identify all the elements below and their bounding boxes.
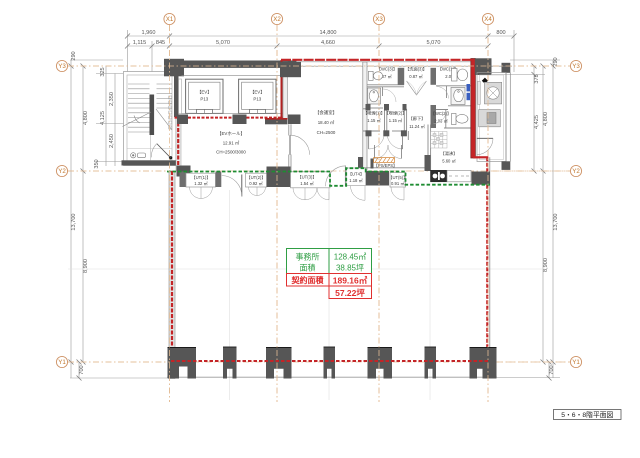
svg-text:12.91 ㎡: 12.91 ㎡ — [223, 140, 240, 146]
svg-text:【湯沸】: 【湯沸】 — [441, 150, 458, 157]
svg-text:325: 325 — [100, 67, 106, 76]
svg-text:1.18 ㎡: 1.18 ㎡ — [349, 177, 363, 183]
svg-text:800: 800 — [496, 30, 505, 36]
svg-text:700: 700 — [79, 365, 85, 374]
svg-text:700: 700 — [549, 365, 555, 374]
svg-text:【EV】: 【EV】 — [197, 90, 212, 95]
svg-text:Y3: Y3 — [572, 63, 580, 70]
svg-text:面積: 面積 — [300, 263, 316, 273]
svg-text:57.22坪: 57.22坪 — [335, 288, 365, 298]
svg-text:【EVホール】: 【EVホール】 — [217, 131, 245, 136]
svg-text:5・6・8階平面図: 5・6・8階平面図 — [561, 410, 613, 419]
svg-text:4,800: 4,800 — [543, 112, 549, 126]
svg-text:38.85坪: 38.85坪 — [336, 264, 364, 273]
svg-text:845: 845 — [156, 40, 165, 46]
svg-text:189.16㎡: 189.16㎡ — [333, 276, 368, 286]
svg-text:【UT(5)】: 【UT(5)】 — [388, 175, 407, 180]
svg-text:【喫煙(1)】: 【喫煙(1)】 — [363, 110, 385, 117]
svg-text:290: 290 — [71, 51, 77, 60]
svg-text:【UT(1)】: 【UT(1)】 — [191, 175, 210, 180]
svg-text:【PS/EPS】: 【PS/EPS】 — [374, 163, 398, 168]
svg-text:1,115: 1,115 — [133, 40, 147, 46]
svg-text:Y2: Y2 — [572, 168, 580, 175]
svg-text:P13: P13 — [200, 97, 208, 102]
svg-text:13,700: 13,700 — [71, 213, 77, 230]
svg-text:X4: X4 — [484, 16, 492, 23]
svg-text:CH=2500/3000: CH=2500/3000 — [216, 150, 246, 155]
svg-text:0.92 ㎡: 0.92 ㎡ — [249, 180, 263, 186]
svg-text:X3: X3 — [375, 16, 383, 23]
svg-text:【UT(2)】: 【UT(2)】 — [246, 175, 265, 180]
svg-text:0.91 ㎡: 0.91 ㎡ — [391, 180, 405, 186]
svg-text:【洗面(3)】: 【洗面(3)】 — [405, 66, 427, 73]
svg-text:4,425: 4,425 — [534, 115, 540, 129]
svg-text:13,700: 13,700 — [553, 213, 559, 230]
svg-text:1.15 ㎡: 1.15 ㎡ — [367, 117, 381, 123]
svg-text:8,900: 8,900 — [543, 258, 549, 272]
svg-text:128.45㎡: 128.45㎡ — [334, 253, 366, 262]
svg-text:1.32 ㎡: 1.32 ㎡ — [194, 180, 208, 186]
svg-text:18.40 ㎡: 18.40 ㎡ — [318, 119, 335, 125]
svg-text:1.54 ㎡: 1.54 ㎡ — [300, 180, 314, 186]
svg-text:Y3: Y3 — [58, 63, 66, 70]
svg-text:Y1: Y1 — [58, 359, 66, 366]
svg-text:【WC(3)】: 【WC(3)】 — [377, 67, 397, 72]
svg-text:2,450: 2,450 — [109, 134, 115, 148]
svg-text:5.60 ㎡: 5.60 ㎡ — [442, 158, 456, 164]
svg-text:【会議室】: 【会議室】 — [315, 109, 337, 116]
svg-text:X2: X2 — [273, 16, 281, 23]
svg-text:11.24 ㎡: 11.24 ㎡ — [409, 123, 425, 129]
svg-text:契約面積: 契約面積 — [291, 275, 325, 285]
svg-text:2,350: 2,350 — [109, 92, 115, 106]
svg-text:Y2: Y2 — [58, 168, 66, 175]
svg-text:事務所: 事務所 — [296, 252, 320, 262]
svg-text:14,800: 14,800 — [319, 30, 336, 36]
svg-text:【UT4】: 【UT4】 — [348, 172, 364, 177]
svg-text:5,070: 5,070 — [427, 40, 441, 46]
svg-text:5,070: 5,070 — [216, 40, 230, 46]
svg-text:P13: P13 — [253, 97, 261, 102]
svg-text:1.15 ㎡: 1.15 ㎡ — [389, 117, 403, 123]
svg-text:【EV】: 【EV】 — [250, 90, 265, 95]
svg-text:290: 290 — [553, 57, 559, 66]
svg-text:CH=2500: CH=2500 — [317, 130, 336, 135]
svg-text:【喫煙(2)】: 【喫煙(2)】 — [385, 110, 407, 117]
svg-text:4,800: 4,800 — [83, 111, 89, 125]
svg-text:【廊下】: 【廊下】 — [409, 115, 426, 122]
svg-text:【WC(2)】: 【WC(2)】 — [431, 111, 451, 116]
svg-text:350: 350 — [94, 159, 100, 168]
svg-text:4,125: 4,125 — [100, 111, 106, 125]
svg-text:【UT(3)】: 【UT(3)】 — [297, 174, 316, 179]
svg-text:4,660: 4,660 — [321, 40, 335, 46]
svg-text:1,960: 1,960 — [142, 30, 156, 36]
svg-text:0.87 ㎡: 0.87 ㎡ — [409, 73, 423, 79]
svg-text:Y1: Y1 — [572, 359, 580, 366]
svg-text:8,900: 8,900 — [83, 259, 89, 273]
svg-text:X1: X1 — [166, 16, 174, 23]
svg-text:375: 375 — [534, 74, 540, 83]
